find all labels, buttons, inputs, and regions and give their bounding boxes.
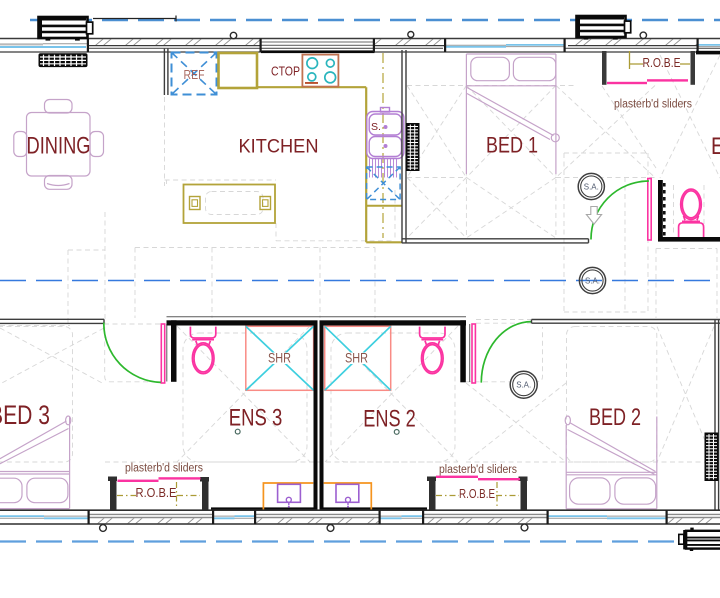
svg-text:S.A.: S.A. [584,182,599,191]
svg-text:plasterb'd sliders: plasterb'd sliders [439,464,517,476]
svg-text:R.O.B.E: R.O.B.E [643,56,681,70]
svg-text:ENS 1: ENS 1 [711,133,720,160]
svg-text:BED 2: BED 2 [589,404,641,431]
svg-text:S.: S. [371,122,381,133]
svg-text:ENS 3: ENS 3 [229,405,283,432]
svg-text:DINING: DINING [27,133,91,160]
svg-text:BED 3: BED 3 [0,400,50,430]
svg-text:ENS 2: ENS 2 [363,406,416,433]
svg-text:S.A.: S.A. [585,276,600,285]
svg-text:BED 1: BED 1 [486,132,538,157]
svg-text:R.O.B.E: R.O.B.E [136,486,177,500]
svg-text:SHR: SHR [268,351,291,366]
svg-text:plasterb'd sliders: plasterb'd sliders [614,99,692,111]
svg-text:REF: REF [184,67,205,82]
svg-text:KITCHEN: KITCHEN [239,136,319,158]
svg-text:plasterb'd sliders: plasterb'd sliders [125,463,203,475]
svg-text:CTOP: CTOP [271,64,300,79]
svg-text:R.O.B.E: R.O.B.E [459,487,495,501]
svg-text:S.A.: S.A. [516,381,531,390]
svg-text:SHR: SHR [345,351,368,366]
